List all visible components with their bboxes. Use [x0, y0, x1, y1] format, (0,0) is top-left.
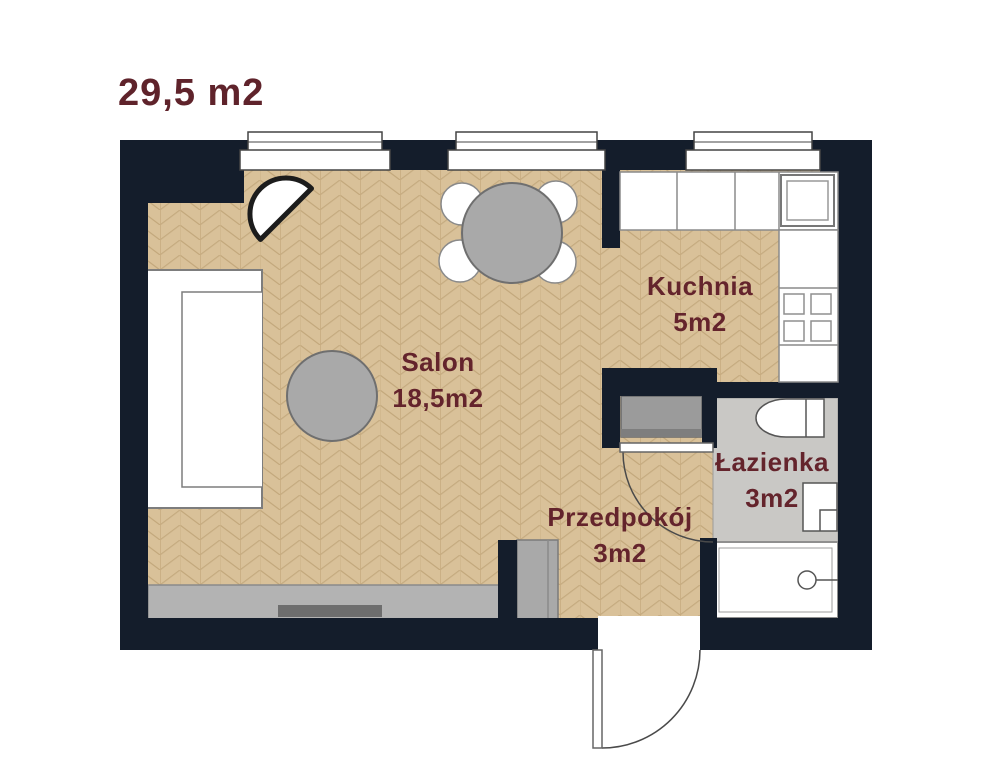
wall-bottom-left [120, 618, 598, 650]
room-name: Salon [392, 344, 483, 380]
room-label-salon: Salon 18,5m2 [392, 344, 483, 416]
window-salon-1 [240, 132, 390, 170]
bathtub [713, 542, 838, 618]
wall-niche-left [602, 368, 620, 448]
washing-machine [621, 396, 702, 437]
kitchen-sink [781, 175, 834, 226]
total-area-title: 29,5 m2 [118, 72, 264, 115]
room-area: 3m2 [547, 535, 692, 571]
window-kitchen [686, 132, 820, 170]
room-label-kuchnia: Kuchnia 5m2 [647, 268, 753, 340]
sofa [145, 270, 262, 508]
dining-table [462, 183, 562, 283]
drain [798, 571, 816, 589]
entry-door [593, 616, 700, 748]
tv [278, 605, 382, 617]
room-area: 5m2 [647, 304, 753, 340]
tv-stand [148, 585, 500, 620]
room-name: Kuchnia [647, 268, 753, 304]
room-name: Przedpokój [547, 499, 692, 535]
window-salon-2 [448, 132, 605, 170]
wall-left [120, 140, 148, 650]
wall-bathroom-side [700, 538, 717, 620]
coffee-table [287, 351, 377, 441]
toilet [756, 399, 824, 437]
wall-niche-right [702, 368, 717, 448]
wall-bottom-right [700, 618, 872, 650]
floor-plan-drawing [0, 0, 982, 768]
room-label-przedpokoj: Przedpokój 3m2 [547, 499, 692, 571]
wall-bathroom-top [717, 382, 838, 398]
room-area: 18,5m2 [392, 380, 483, 416]
wall-right [838, 140, 872, 650]
floor-plan: 29,5 m2 Salon 18,5m2 Kuchnia 5m2 Przedpo… [0, 0, 982, 768]
windows [240, 132, 820, 170]
wall-wardrobe-stub [498, 540, 517, 620]
room-name: Łazienka [715, 444, 829, 480]
room-label-lazienka: Łazienka 3m2 [715, 444, 829, 516]
room-area: 3m2 [715, 480, 829, 516]
